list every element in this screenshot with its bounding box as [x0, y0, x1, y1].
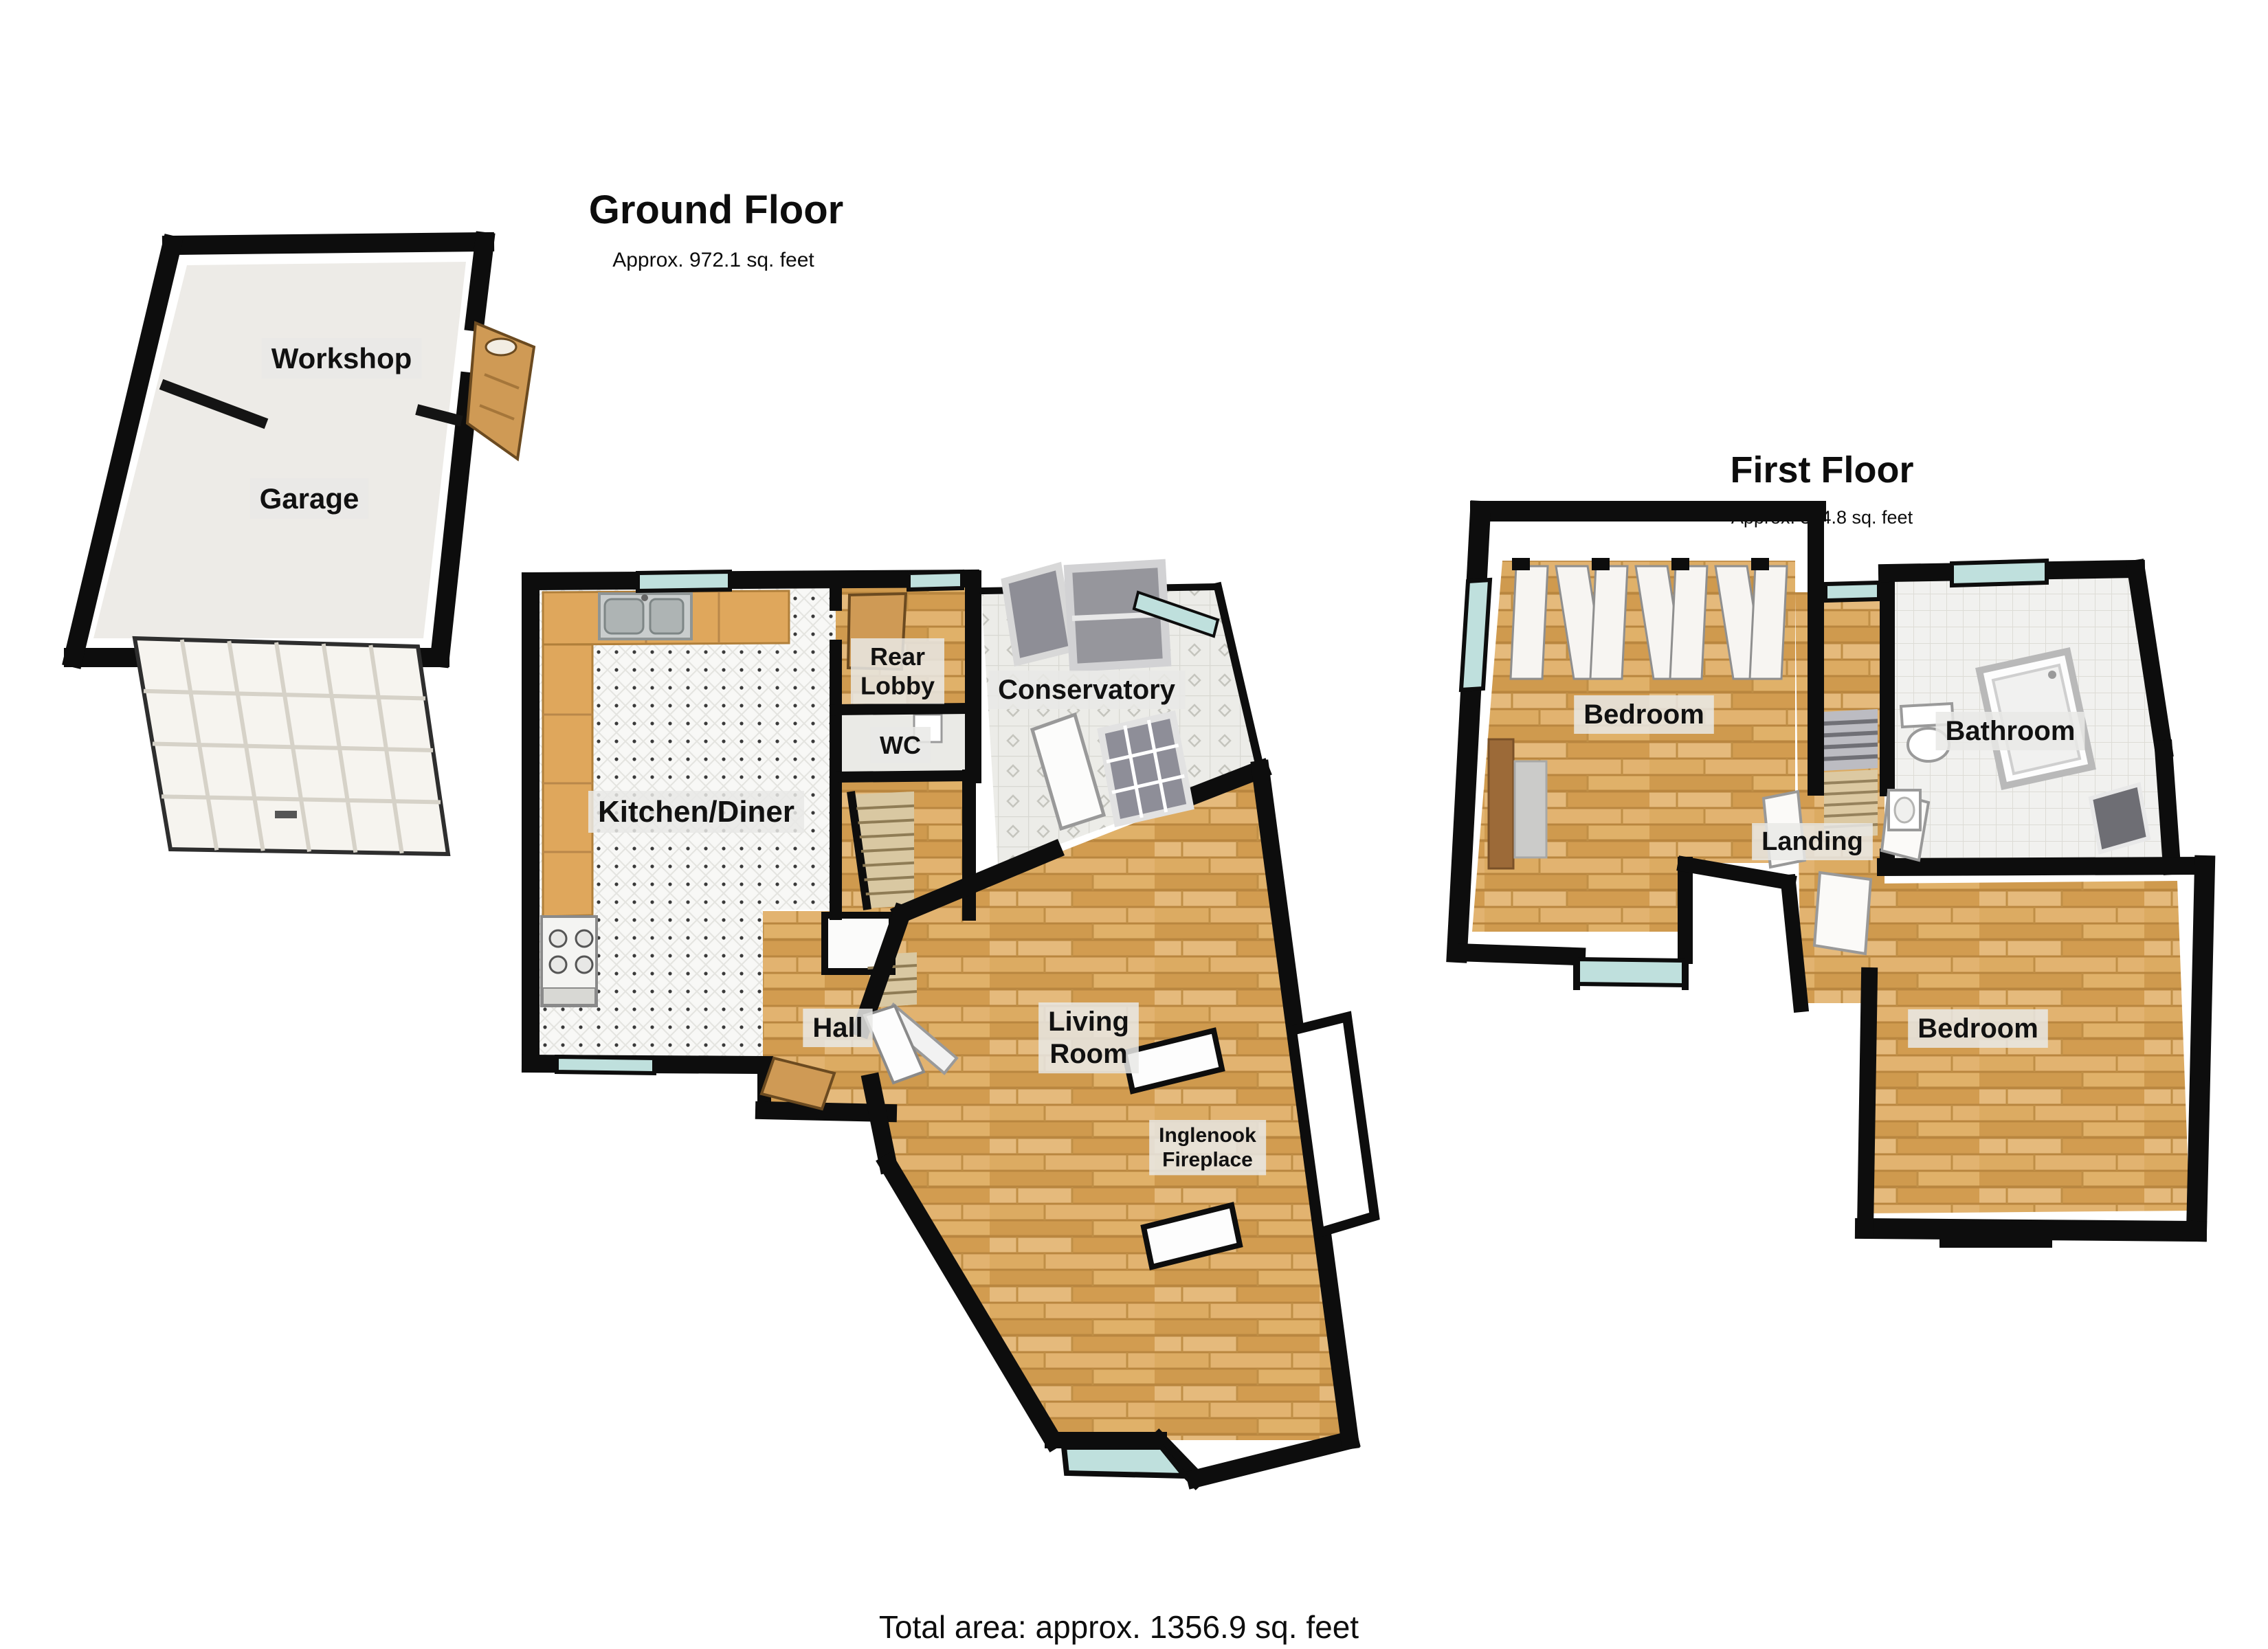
label-text-rear-lobby: RearLobby	[860, 642, 935, 699]
label-text-garage: Garage	[260, 482, 359, 515]
closet-door-leaf	[1590, 566, 1627, 679]
closet-door-leaf	[1750, 566, 1787, 679]
rear-window	[909, 572, 962, 590]
first-floor-title: First Floor	[1731, 449, 1914, 491]
label-garage: Garage	[250, 478, 369, 519]
total-area-text: Total area: approx. 1356.9 sq. feet	[879, 1609, 1359, 1645]
label-text-landing: Landing	[1761, 827, 1863, 856]
bedroom-back-door-threshold	[1939, 1229, 2052, 1248]
label-workshop: Workshop	[262, 338, 422, 379]
label-text-bathroom: Bathroom	[1946, 716, 2076, 746]
label-bedroom-back: Bedroom	[1908, 1009, 2048, 1048]
stove	[542, 917, 597, 1006]
label-text-bedroom-back: Bedroom	[1917, 1013, 2038, 1044]
label-hall: Hall	[803, 1009, 872, 1047]
kitchen-sink	[599, 594, 691, 639]
label-landing: Landing	[1752, 823, 1873, 860]
ground-floor-block	[531, 563, 1375, 1479]
bathroom-window	[1952, 561, 2047, 585]
label-text-conservatory: Conservatory	[998, 675, 1176, 705]
label-kitchen-diner: Kitchen/Diner	[588, 791, 804, 833]
kitchen-window-top	[638, 572, 730, 591]
bedroom-desk-pad	[1515, 761, 1546, 857]
closet-door-leaf	[1670, 566, 1707, 679]
ground-floor-title: Ground Floor	[589, 188, 844, 232]
closet-door-leaf	[1511, 566, 1548, 679]
bedroom-front-window	[1461, 580, 1490, 690]
label-text-hall: Hall	[812, 1013, 863, 1043]
stairs-first	[1823, 709, 1878, 838]
garage-door	[135, 638, 448, 854]
ground-floor-area: Approx. 972.1 sq. feet	[612, 249, 814, 271]
bedroom-desk	[1489, 739, 1513, 868]
label-text-wc: WC	[880, 731, 921, 759]
garage-block	[74, 242, 534, 854]
bathroom-sink	[1889, 790, 1920, 830]
glass-panel-small	[1005, 566, 1072, 662]
garage-door-handle	[275, 811, 297, 818]
label-rear-lobby: RearLobby	[851, 638, 944, 704]
label-text-workshop: Workshop	[271, 342, 412, 374]
first-floor-block	[1457, 511, 2205, 1248]
porch-glass-door	[1064, 1447, 1185, 1476]
closet-hinge-post	[1671, 558, 1689, 570]
floorplan-canvas: Ground Floor Approx. 972.1 sq. feet Firs…	[0, 0, 2268, 1649]
radiator	[2091, 785, 2148, 852]
label-living-room: LivingRoom	[1038, 1002, 1139, 1073]
label-bathroom: Bathroom	[1936, 712, 2085, 750]
label-wc: WC	[870, 727, 931, 763]
label-text-kitchen-diner: Kitchen/Diner	[598, 795, 794, 829]
garage-side-door	[467, 323, 534, 459]
closet-hinge-post	[1512, 558, 1530, 570]
label-conservatory: Conservatory	[988, 671, 1186, 709]
label-text-bedroom-front: Bedroom	[1583, 699, 1704, 730]
bay-window	[1578, 959, 1684, 985]
bedroom-back-door	[1814, 873, 1871, 954]
closet-hinge-post	[1751, 558, 1769, 570]
stairwell-window	[1825, 583, 1879, 601]
kitchen-window-bottom	[557, 1057, 654, 1073]
conservatory-door-glazed	[1101, 715, 1190, 823]
closet-hinge-post	[1592, 558, 1610, 570]
label-inglenook: InglenookFireplace	[1149, 1120, 1266, 1175]
label-bedroom-front: Bedroom	[1574, 695, 1714, 734]
